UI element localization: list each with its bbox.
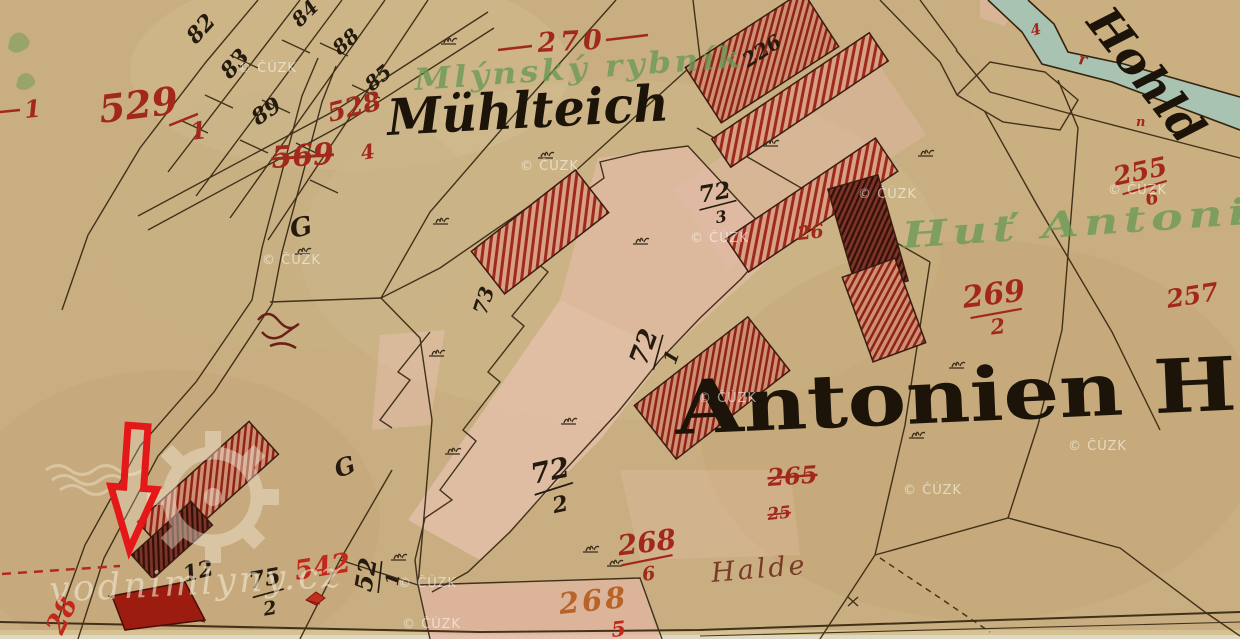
copyright-watermark: © ČÚZK: [520, 158, 579, 174]
map-viewport[interactable]: Mühlteich Antonien H Hohld Halde Mlýnský…: [0, 0, 1240, 639]
copyright-watermark: © ČÚZK: [1108, 182, 1167, 198]
copyright-watermark: © ČÚZK: [262, 252, 321, 268]
copyright-watermark: © ČÚZK: [238, 60, 297, 76]
svg-text:72: 72: [697, 177, 733, 209]
parcel-number-red: 270: [536, 24, 607, 59]
svg-text:529: 529: [96, 77, 180, 131]
parcel-number-red: 25: [765, 503, 792, 525]
copyright-watermark: © ČÚZK: [398, 575, 457, 591]
copyright-watermark: © ČÚZK: [690, 230, 749, 246]
parcel-number-red: 569: [270, 137, 335, 176]
parcel-number-red: 5: [610, 616, 627, 639]
parcel-number-red: 1: [23, 94, 42, 124]
red-mark: n: [1136, 115, 1145, 130]
svg-text:2: 2: [988, 313, 1007, 340]
parcel-number-red: 26: [795, 220, 825, 245]
copyright-watermark: © ČÚZK: [1068, 438, 1127, 454]
svg-text:6: 6: [641, 562, 657, 585]
copyright-watermark: © ČÚZK: [698, 390, 757, 406]
copyright-watermark: © ČÚZK: [858, 186, 917, 202]
svg-text:1: 1: [188, 115, 208, 146]
copyright-watermark: © ČÚZK: [903, 482, 962, 498]
svg-text:52: 52: [348, 556, 382, 594]
copyright-watermark: © ČÚZK: [402, 616, 461, 632]
parcel-number-red: 265: [765, 460, 818, 492]
map-canvas[interactable]: Mühlteich Antonien H Hohld Halde Mlýnský…: [0, 0, 1240, 639]
